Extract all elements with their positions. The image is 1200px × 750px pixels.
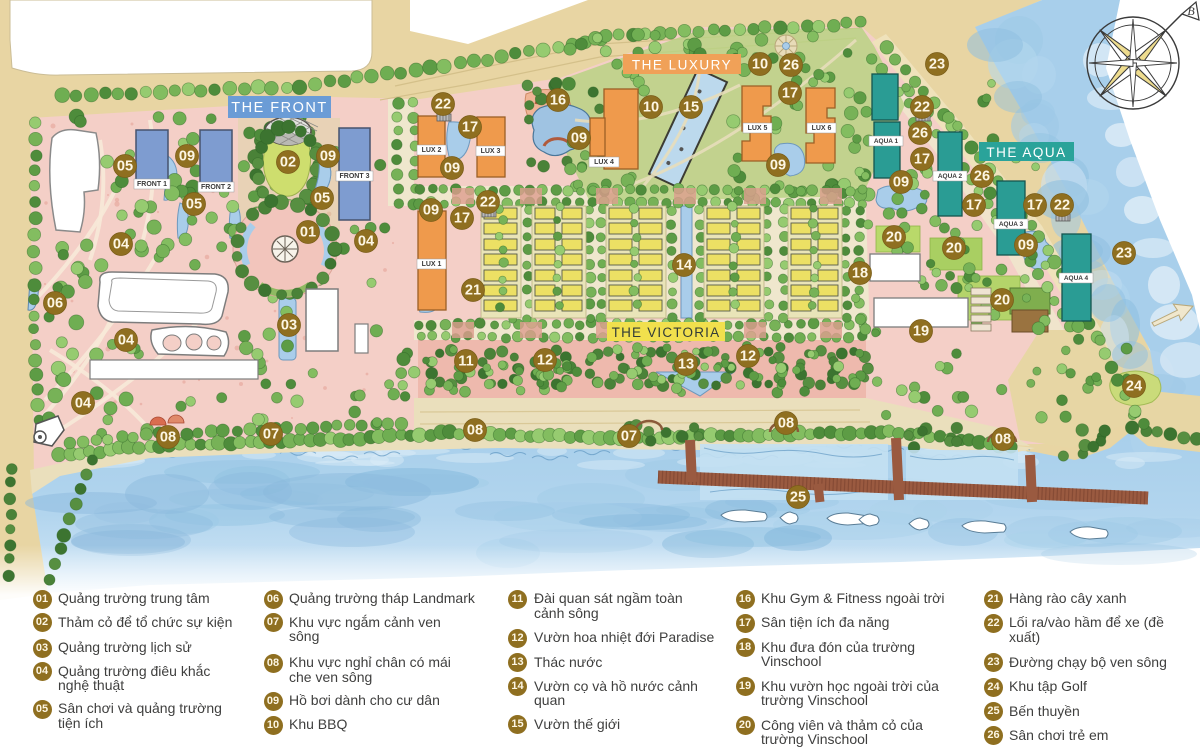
svg-text:12: 12 bbox=[537, 353, 553, 369]
svg-text:26: 26 bbox=[912, 126, 928, 142]
svg-text:09: 09 bbox=[1018, 238, 1034, 254]
svg-text:04: 04 bbox=[358, 234, 375, 250]
svg-text:09: 09 bbox=[893, 175, 909, 191]
svg-text:11: 11 bbox=[458, 354, 473, 370]
svg-text:13: 13 bbox=[678, 357, 694, 373]
svg-text:17: 17 bbox=[966, 198, 982, 214]
svg-text:03: 03 bbox=[281, 318, 297, 334]
svg-text:10: 10 bbox=[643, 100, 659, 116]
svg-text:16: 16 bbox=[550, 93, 566, 109]
svg-text:LUX 6: LUX 6 bbox=[812, 125, 832, 132]
svg-text:05: 05 bbox=[186, 197, 202, 213]
svg-text:20: 20 bbox=[994, 293, 1010, 309]
svg-text:22: 22 bbox=[435, 97, 451, 113]
svg-text:THE VICTORIA: THE VICTORIA bbox=[612, 325, 721, 340]
svg-text:25: 25 bbox=[790, 490, 806, 506]
svg-text:THE AQUA: THE AQUA bbox=[986, 145, 1066, 160]
svg-text:AQUA 4: AQUA 4 bbox=[1064, 275, 1089, 282]
svg-text:LUX 3: LUX 3 bbox=[481, 148, 501, 155]
svg-text:17: 17 bbox=[1027, 198, 1043, 214]
svg-text:20: 20 bbox=[946, 241, 962, 257]
svg-text:09: 09 bbox=[179, 149, 195, 165]
svg-text:14: 14 bbox=[676, 258, 693, 274]
svg-text:04: 04 bbox=[75, 396, 92, 412]
svg-text:08: 08 bbox=[778, 416, 794, 432]
svg-text:AQUA 2: AQUA 2 bbox=[938, 173, 963, 180]
svg-text:10: 10 bbox=[752, 57, 768, 73]
svg-text:17: 17 bbox=[462, 120, 478, 136]
svg-text:LUX 2: LUX 2 bbox=[422, 147, 442, 154]
svg-text:17: 17 bbox=[914, 152, 930, 168]
svg-text:AQUA 1: AQUA 1 bbox=[874, 138, 899, 145]
svg-text:19: 19 bbox=[913, 324, 929, 340]
svg-text:26: 26 bbox=[783, 58, 799, 74]
svg-text:LUX 5: LUX 5 bbox=[748, 125, 768, 132]
svg-text:THE LUXURY: THE LUXURY bbox=[632, 58, 732, 73]
svg-text:08: 08 bbox=[995, 432, 1011, 448]
svg-text:12: 12 bbox=[740, 349, 756, 365]
svg-text:LUX 4: LUX 4 bbox=[594, 159, 614, 166]
svg-text:FRONT 3: FRONT 3 bbox=[340, 173, 370, 180]
svg-text:15: 15 bbox=[683, 100, 699, 116]
svg-text:05: 05 bbox=[117, 159, 133, 175]
svg-text:05: 05 bbox=[314, 191, 330, 207]
svg-text:23: 23 bbox=[1116, 246, 1132, 262]
svg-text:23: 23 bbox=[929, 57, 945, 73]
svg-text:22: 22 bbox=[480, 195, 496, 211]
svg-text:01: 01 bbox=[300, 225, 316, 241]
svg-text:B: B bbox=[1187, 4, 1195, 18]
svg-text:20: 20 bbox=[886, 230, 902, 246]
svg-text:04: 04 bbox=[113, 237, 130, 253]
svg-text:17: 17 bbox=[454, 211, 470, 227]
svg-text:09: 09 bbox=[423, 203, 439, 219]
svg-text:FRONT 1: FRONT 1 bbox=[137, 181, 167, 188]
svg-text:18: 18 bbox=[852, 266, 868, 282]
svg-text:09: 09 bbox=[571, 131, 587, 147]
svg-text:AQUA 3: AQUA 3 bbox=[999, 221, 1024, 228]
svg-text:17: 17 bbox=[782, 86, 798, 102]
svg-text:FRONT 2: FRONT 2 bbox=[201, 184, 231, 191]
svg-text:09: 09 bbox=[320, 149, 336, 165]
svg-text:04: 04 bbox=[118, 333, 135, 349]
svg-text:24: 24 bbox=[1126, 379, 1143, 395]
svg-text:09: 09 bbox=[444, 161, 460, 177]
svg-text:21: 21 bbox=[465, 283, 481, 299]
svg-text:07: 07 bbox=[621, 429, 637, 445]
svg-text:22: 22 bbox=[914, 100, 930, 116]
svg-text:08: 08 bbox=[467, 423, 483, 439]
svg-text:LUX 1: LUX 1 bbox=[422, 261, 442, 268]
svg-text:09: 09 bbox=[770, 158, 786, 174]
svg-text:02: 02 bbox=[280, 155, 296, 171]
svg-text:26: 26 bbox=[974, 169, 990, 185]
svg-text:06: 06 bbox=[47, 296, 63, 312]
svg-text:08: 08 bbox=[160, 430, 176, 446]
svg-text:THE FRONT: THE FRONT bbox=[231, 100, 327, 116]
svg-text:22: 22 bbox=[1054, 198, 1070, 214]
svg-text:07: 07 bbox=[263, 427, 279, 443]
